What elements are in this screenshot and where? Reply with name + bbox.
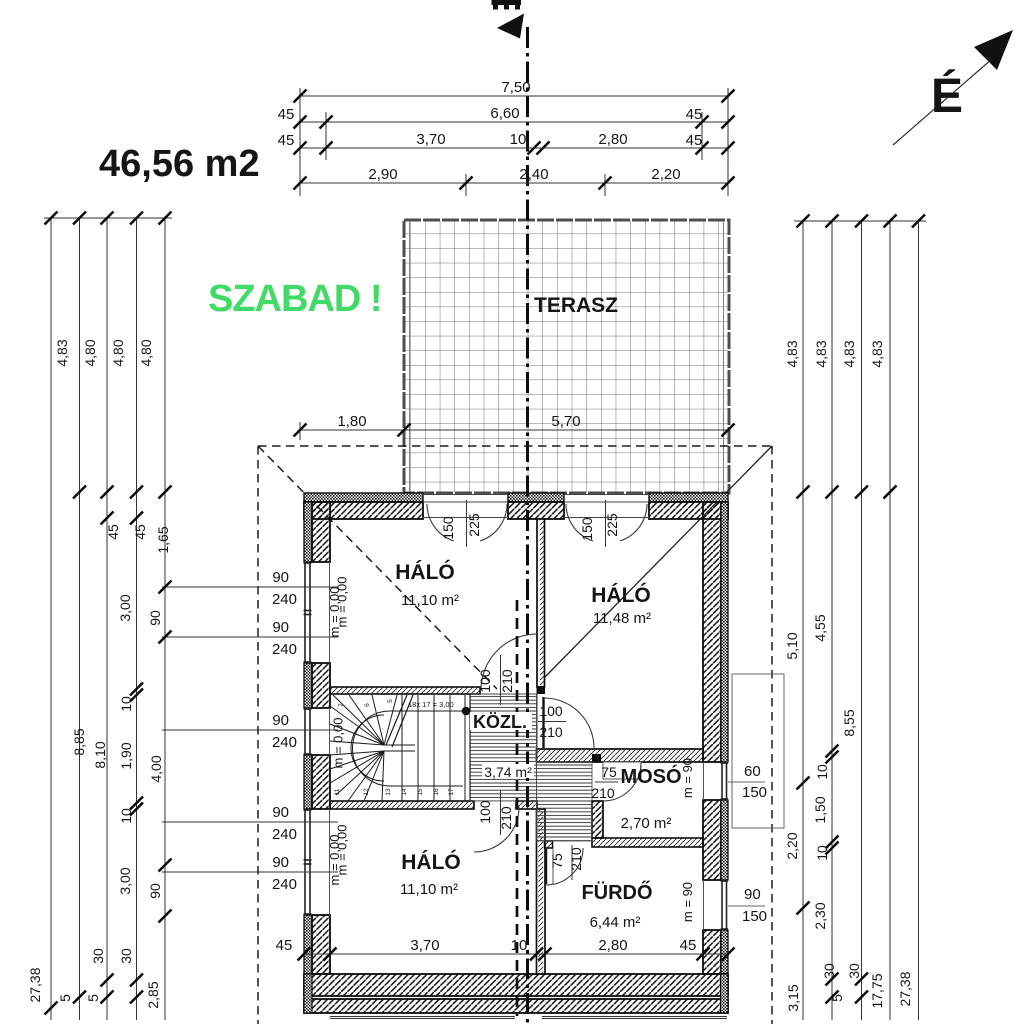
- svg-text:10: 10: [814, 845, 830, 861]
- svg-text:7: 7: [338, 703, 345, 707]
- svg-text:90: 90: [272, 569, 289, 586]
- svg-text:17: 17: [448, 788, 455, 796]
- svg-text:4,83: 4,83: [869, 340, 885, 367]
- svg-text:4,55: 4,55: [812, 614, 828, 641]
- svg-text:4,83: 4,83: [784, 340, 800, 367]
- svg-text:60: 60: [744, 763, 761, 780]
- svg-text:45: 45: [686, 132, 703, 149]
- svg-text:4,00: 4,00: [148, 755, 164, 782]
- svg-text:13: 13: [385, 788, 392, 796]
- svg-text:1,90: 1,90: [118, 742, 134, 769]
- svg-text:2,85: 2,85: [145, 981, 161, 1008]
- svg-text:150: 150: [579, 517, 595, 541]
- svg-text:90: 90: [147, 883, 163, 899]
- svg-text:100: 100: [477, 669, 493, 693]
- svg-text:5: 5: [387, 699, 394, 703]
- svg-text:90: 90: [272, 712, 289, 729]
- svg-text:16: 16: [433, 788, 440, 796]
- svg-text:6,44 m²: 6,44 m²: [590, 914, 641, 931]
- svg-text:45: 45: [105, 524, 121, 540]
- svg-text:210: 210: [498, 806, 514, 830]
- svg-text:SZABAD !: SZABAD !: [208, 278, 382, 320]
- svg-text:8,85: 8,85: [71, 728, 87, 755]
- svg-text:210: 210: [591, 785, 615, 801]
- svg-text:46,56 m2: 46,56 m2: [99, 143, 260, 185]
- svg-text:5,10: 5,10: [784, 632, 800, 659]
- svg-text:240: 240: [272, 734, 297, 751]
- svg-text:5,70: 5,70: [551, 413, 580, 430]
- svg-text:2,90: 2,90: [368, 166, 397, 183]
- svg-text:4,80: 4,80: [138, 339, 154, 366]
- svg-text:210: 210: [568, 847, 584, 871]
- svg-text:100: 100: [539, 703, 563, 719]
- svg-text:3,00: 3,00: [117, 867, 133, 894]
- svg-text:12: 12: [363, 788, 370, 796]
- svg-text:100: 100: [477, 800, 493, 824]
- svg-text:225: 225: [466, 513, 482, 537]
- svg-text:FÜRDŐ: FÜRDŐ: [581, 881, 652, 904]
- svg-text:m = 0,00: m = 0,00: [335, 577, 350, 628]
- svg-text:30: 30: [846, 963, 862, 979]
- svg-text:45: 45: [132, 524, 148, 540]
- svg-text:5: 5: [57, 994, 73, 1002]
- svg-text:3,70: 3,70: [410, 937, 439, 954]
- svg-text:m = 90: m = 90: [680, 758, 695, 798]
- svg-text:2,70 m²: 2,70 m²: [621, 815, 672, 832]
- svg-text:210: 210: [539, 724, 563, 740]
- svg-text:4,80: 4,80: [82, 339, 98, 366]
- svg-text:7,50: 7,50: [501, 79, 530, 96]
- svg-text:150: 150: [440, 516, 456, 540]
- svg-text:2,80: 2,80: [598, 937, 627, 954]
- svg-text:8,55: 8,55: [841, 709, 857, 736]
- svg-text:10: 10: [511, 937, 528, 954]
- svg-text:90: 90: [272, 619, 289, 636]
- svg-text:4,83: 4,83: [813, 340, 829, 367]
- svg-text:150: 150: [742, 908, 767, 925]
- svg-text:8,10: 8,10: [92, 741, 108, 768]
- svg-text:75: 75: [601, 764, 617, 780]
- svg-text:90: 90: [272, 804, 289, 821]
- svg-text:m = 90: m = 90: [680, 882, 695, 922]
- svg-text:45: 45: [686, 106, 703, 123]
- svg-text:1,80: 1,80: [337, 413, 366, 430]
- svg-text:10: 10: [118, 808, 134, 824]
- svg-text:225: 225: [604, 513, 620, 537]
- svg-text:4,83: 4,83: [841, 340, 857, 367]
- svg-text:2,20: 2,20: [651, 166, 680, 183]
- svg-text:3,70: 3,70: [416, 131, 445, 148]
- svg-text:5: 5: [85, 994, 101, 1002]
- svg-text:17,75: 17,75: [869, 973, 885, 1008]
- svg-text:11,10 m²: 11,10 m²: [400, 881, 458, 898]
- svg-text:3,74 m²: 3,74 m²: [484, 764, 532, 780]
- svg-text:14: 14: [401, 788, 408, 796]
- svg-text:m = 0,00: m = 0,00: [331, 718, 346, 769]
- svg-text:11,10 m²: 11,10 m²: [401, 592, 459, 609]
- svg-text:11,48 m²: 11,48 m²: [593, 610, 651, 627]
- svg-text:210: 210: [499, 669, 515, 693]
- svg-text:KÖZL.: KÖZL.: [473, 712, 527, 732]
- svg-text:3,15: 3,15: [785, 984, 801, 1011]
- svg-text:HÁLÓ: HÁLÓ: [591, 583, 651, 607]
- svg-text:90: 90: [744, 886, 761, 903]
- svg-text:10: 10: [118, 696, 134, 712]
- svg-text:240: 240: [272, 876, 297, 893]
- svg-text:1,50: 1,50: [812, 796, 828, 823]
- svg-text:240: 240: [272, 826, 297, 843]
- svg-text:2,40: 2,40: [519, 166, 548, 183]
- svg-text:6: 6: [364, 703, 371, 707]
- svg-text:27,38: 27,38: [897, 971, 913, 1006]
- svg-text:6,60: 6,60: [490, 105, 519, 122]
- svg-text:TERASZ: TERASZ: [534, 294, 618, 317]
- svg-text:90: 90: [272, 854, 289, 871]
- svg-text:45: 45: [278, 106, 295, 123]
- svg-text:HÁLÓ: HÁLÓ: [401, 850, 461, 874]
- svg-text:4,80: 4,80: [110, 339, 126, 366]
- svg-text:30: 30: [90, 948, 106, 964]
- svg-text:É: É: [931, 69, 963, 123]
- svg-text:45: 45: [680, 937, 697, 954]
- svg-text:240: 240: [272, 591, 297, 608]
- svg-text:75: 75: [549, 853, 565, 869]
- svg-text:27,38: 27,38: [27, 967, 43, 1002]
- svg-text:11: 11: [334, 788, 341, 795]
- svg-text:240: 240: [272, 641, 297, 658]
- svg-text:10: 10: [510, 131, 527, 148]
- svg-text:m = 0,00: m = 0,00: [335, 825, 350, 876]
- svg-text:30: 30: [118, 948, 134, 964]
- svg-text:18x 17 = 3,00: 18x 17 = 3,00: [408, 700, 454, 709]
- svg-text:4,83: 4,83: [54, 339, 70, 366]
- svg-text:45: 45: [278, 132, 295, 149]
- svg-text:2,20: 2,20: [784, 832, 800, 859]
- svg-text:45: 45: [276, 937, 293, 954]
- svg-text:1,65: 1,65: [155, 526, 171, 553]
- svg-text:2,30: 2,30: [812, 902, 828, 929]
- svg-text:3,00: 3,00: [117, 594, 133, 621]
- svg-text:HÁLÓ: HÁLÓ: [395, 560, 455, 584]
- svg-text:10: 10: [814, 764, 830, 780]
- svg-text:5: 5: [829, 994, 845, 1002]
- svg-text:90: 90: [147, 610, 163, 626]
- svg-text:2,80: 2,80: [598, 131, 627, 148]
- svg-text:150: 150: [742, 784, 767, 801]
- svg-text:15: 15: [417, 788, 424, 796]
- svg-text:30: 30: [821, 963, 837, 979]
- svg-text:MOSÓ: MOSÓ: [620, 764, 681, 788]
